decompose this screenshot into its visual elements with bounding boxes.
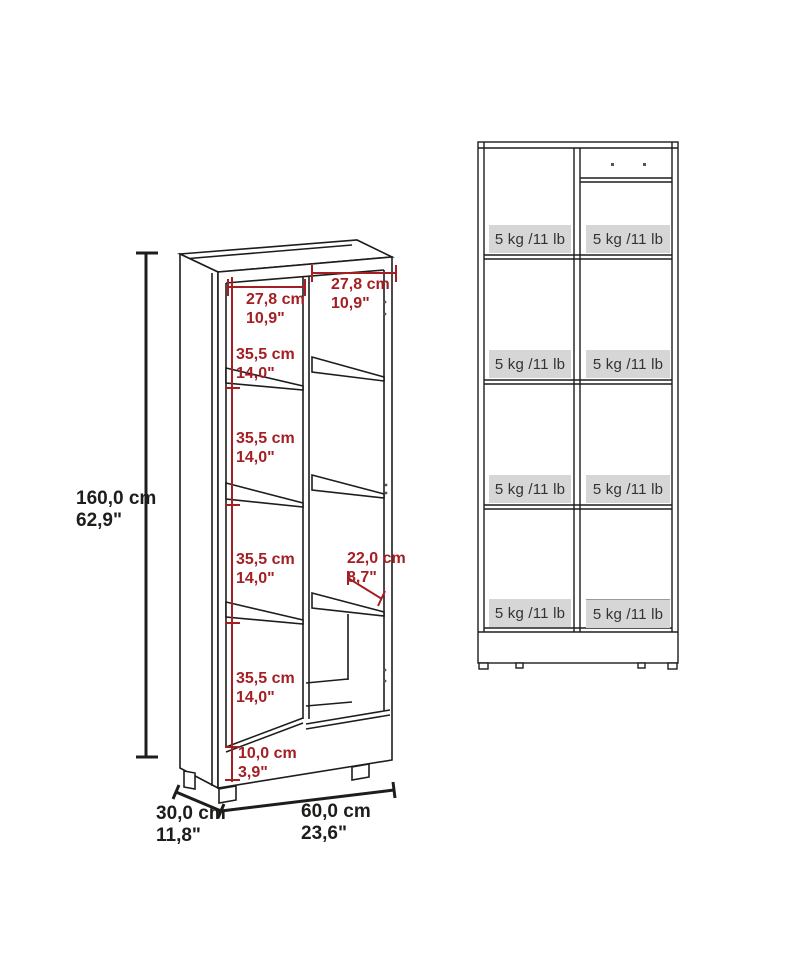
cabinet-front-face: [218, 257, 392, 788]
dim-value-cm: 27,8 cm: [246, 290, 305, 309]
cabinet-foot: [219, 786, 236, 803]
cabinet-foot: [352, 764, 369, 780]
load-capacity-band: 5 kg /11 lb: [489, 599, 571, 627]
cabinet-foot: [638, 663, 645, 668]
load-capacity-label: 5 kg /11 lb: [495, 231, 565, 248]
load-capacity-band: 5 kg /11 lb: [586, 599, 670, 628]
load-capacity-label: 5 kg /11 lb: [495, 356, 565, 373]
dim-label-shelf-spacing-2: 35,5 cm 14,0": [236, 429, 295, 467]
dim-value-in: 62,9": [76, 510, 156, 532]
dim-value-cm: 35,5 cm: [236, 550, 295, 569]
dim-value-in: 14,0": [236, 688, 295, 707]
dim-label-left-column-width: 27,8 cm 10,9": [246, 290, 305, 328]
load-capacity-label: 5 kg /11 lb: [495, 605, 565, 622]
load-capacity-band: 5 kg /11 lb: [489, 225, 571, 253]
load-capacity-label: 5 kg /11 lb: [593, 606, 663, 623]
dim-label-depth: 30,0 cm 11,8": [156, 803, 226, 847]
mount-hole: [643, 163, 646, 166]
load-capacity-band: 5 kg /11 lb: [586, 225, 670, 253]
dim-value-cm: 35,5 cm: [236, 429, 295, 448]
dim-value-in: 14,0": [236, 448, 295, 467]
load-capacity-band: 5 kg /11 lb: [489, 475, 571, 503]
cabinet-foot: [516, 663, 523, 668]
dim-label-shelf-spacing-1: 35,5 cm 14,0": [236, 345, 295, 383]
dim-label-right-column-width: 27,8 cm 10,9": [331, 275, 390, 313]
cabinet-foot: [479, 663, 488, 669]
dim-label-height: 160,0 cm 62,9": [76, 488, 156, 532]
load-capacity-band: 5 kg /11 lb: [489, 350, 571, 378]
cabinet-foot: [668, 663, 677, 669]
dim-value-in: 8,7": [347, 568, 406, 587]
load-capacity-label: 5 kg /11 lb: [593, 356, 663, 373]
mount-hole: [611, 163, 614, 166]
dim-value-in: 10,9": [246, 309, 305, 328]
dim-value-cm: 30,0 cm: [156, 803, 226, 825]
dim-value-cm: 35,5 cm: [236, 669, 295, 688]
dim-label-width: 60,0 cm 23,6": [301, 801, 371, 845]
dim-label-shelf-depth: 22,0 cm 8,7": [347, 549, 406, 587]
dim-value-in: 3,9": [238, 763, 297, 782]
dim-value-cm: 60,0 cm: [301, 801, 371, 823]
dim-value-in: 11,8": [156, 825, 226, 847]
dim-end-bar: [393, 782, 395, 798]
dim-value-in: 14,0": [236, 569, 295, 588]
dim-label-shelf-spacing-4: 35,5 cm 14,0": [236, 669, 295, 707]
dim-value-cm: 27,8 cm: [331, 275, 390, 294]
dim-value-cm: 160,0 cm: [76, 488, 156, 510]
dim-label-shelf-spacing-3: 35,5 cm 14,0": [236, 550, 295, 588]
dim-value-cm: 35,5 cm: [236, 345, 295, 364]
load-capacity-label: 5 kg /11 lb: [495, 481, 565, 498]
right-cabinet-front: [478, 142, 678, 669]
load-capacity-label: 5 kg /11 lb: [593, 481, 663, 498]
dim-label-base-height: 10,0 cm 3,9": [238, 744, 297, 782]
load-capacity-label: 5 kg /11 lb: [593, 231, 663, 248]
dim-value-in: 23,6": [301, 823, 371, 845]
dimension-diagram: 27,8 cm 10,9" 27,8 cm 10,9" 35,5 cm 14,0…: [0, 0, 800, 977]
dim-value-cm: 22,0 cm: [347, 549, 406, 568]
dim-value-in: 14,0": [236, 364, 295, 383]
load-capacity-band: 5 kg /11 lb: [586, 350, 670, 378]
load-capacity-band: 5 kg /11 lb: [586, 475, 670, 503]
cabinet-foot: [184, 771, 195, 789]
dim-value-in: 10,9": [331, 294, 390, 313]
dim-value-cm: 10,0 cm: [238, 744, 297, 763]
cabinet-outline: [478, 142, 678, 663]
